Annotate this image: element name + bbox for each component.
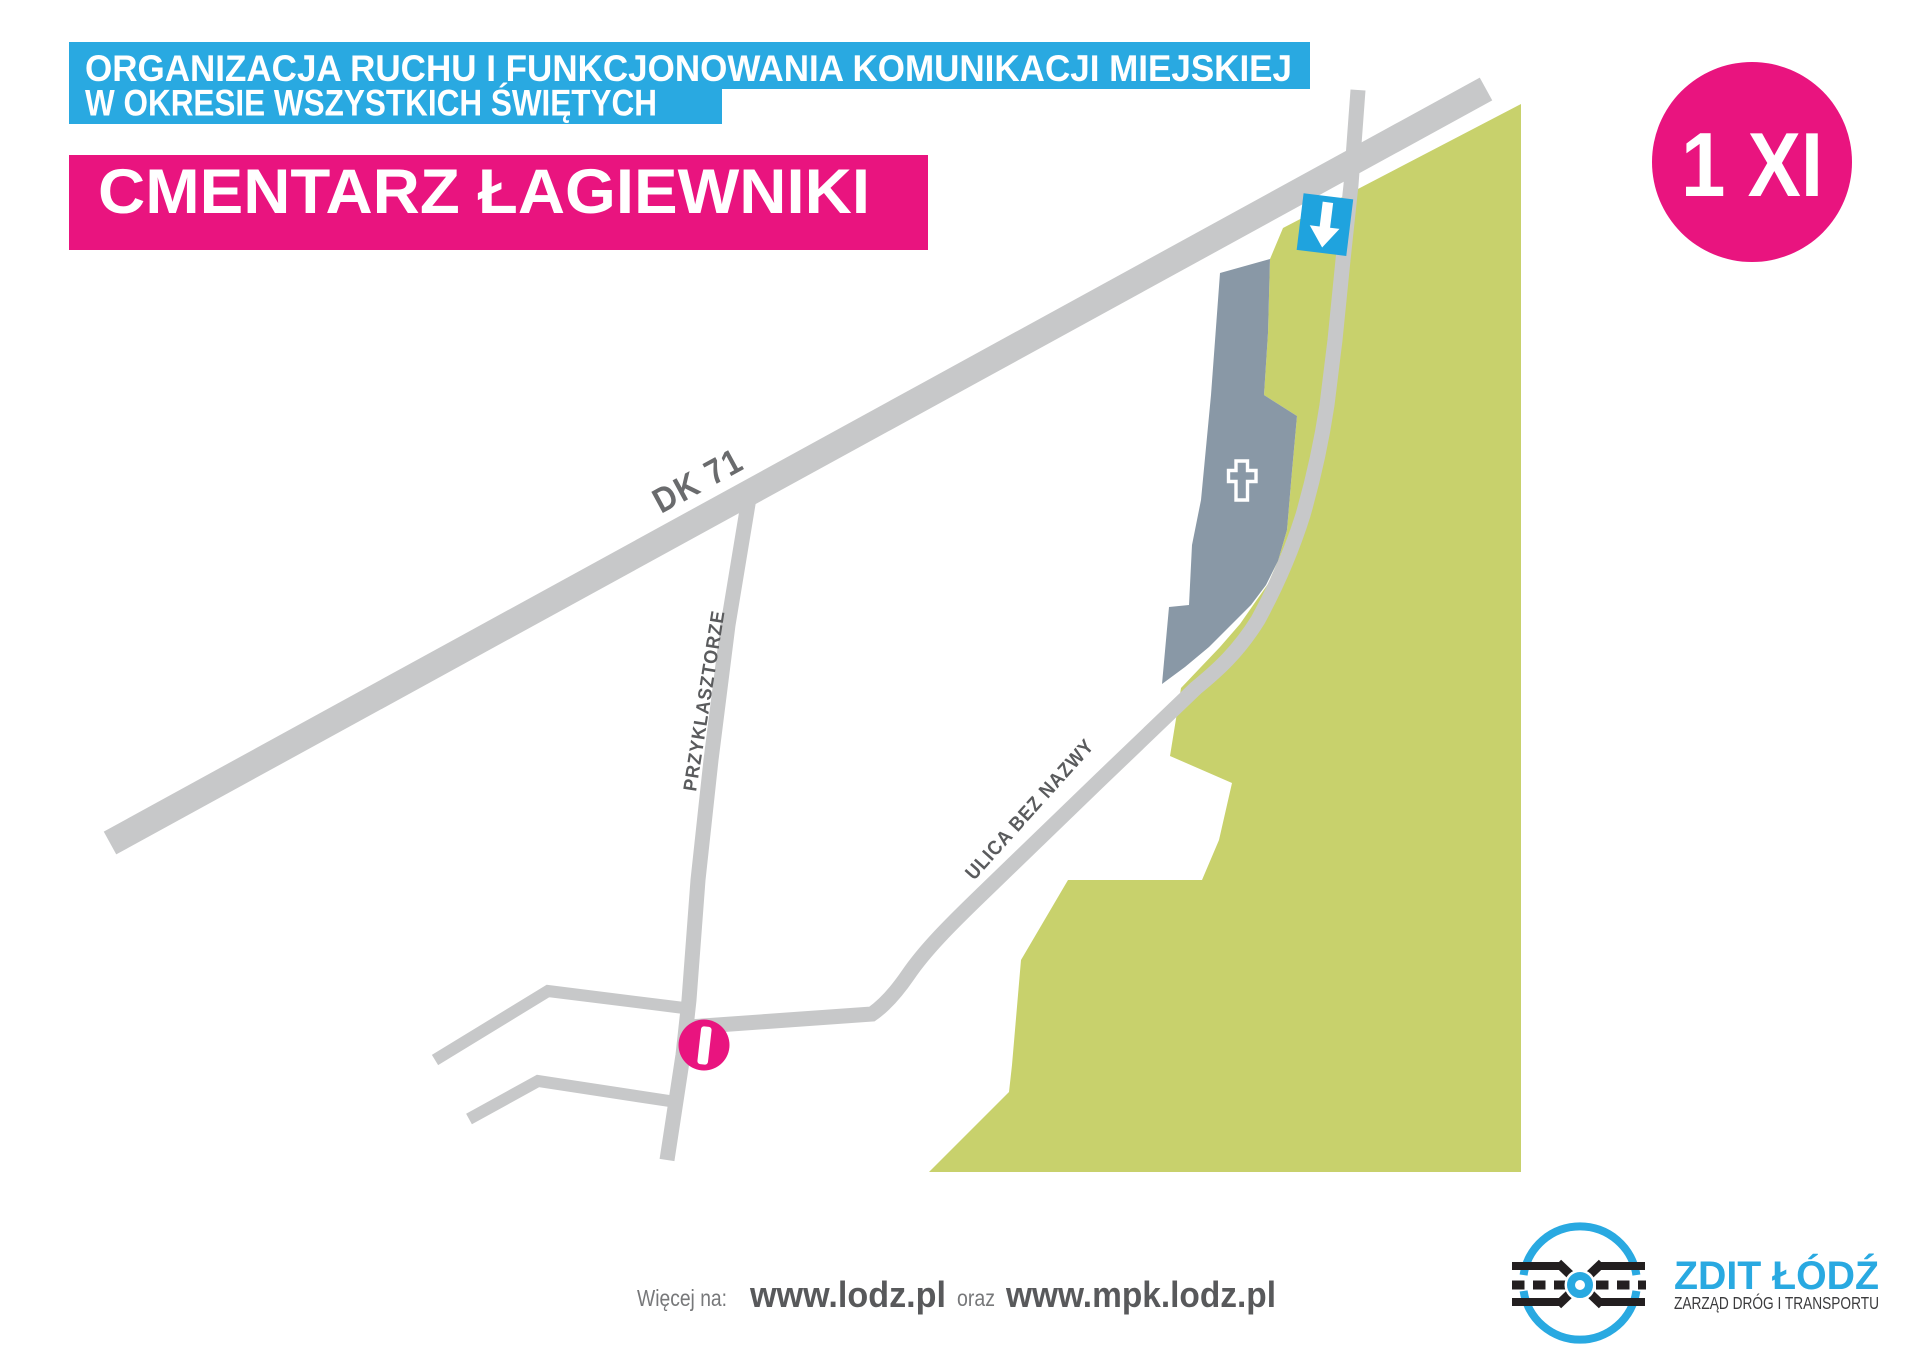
svg-text:oraz: oraz: [957, 1285, 995, 1311]
svg-text:1 XI: 1 XI: [1681, 115, 1823, 216]
svg-text:ZARZĄD DRÓG I TRANSPORTU: ZARZĄD DRÓG I TRANSPORTU: [1674, 1292, 1879, 1313]
svg-text:www.lodz.pl: www.lodz.pl: [749, 1274, 946, 1315]
svg-text:ZDIT ŁÓDŹ: ZDIT ŁÓDŹ: [1674, 1252, 1879, 1298]
svg-text:www.mpk.lodz.pl: www.mpk.lodz.pl: [1005, 1274, 1276, 1315]
svg-text:Więcej na:: Więcej na:: [637, 1285, 727, 1311]
svg-text:W OKRESIE WSZYSTKICH ŚWIĘTYCH: W OKRESIE WSZYSTKICH ŚWIĘTYCH: [85, 82, 657, 124]
svg-text:CMENTARZ ŁAGIEWNIKI: CMENTARZ ŁAGIEWNIKI: [98, 157, 870, 227]
